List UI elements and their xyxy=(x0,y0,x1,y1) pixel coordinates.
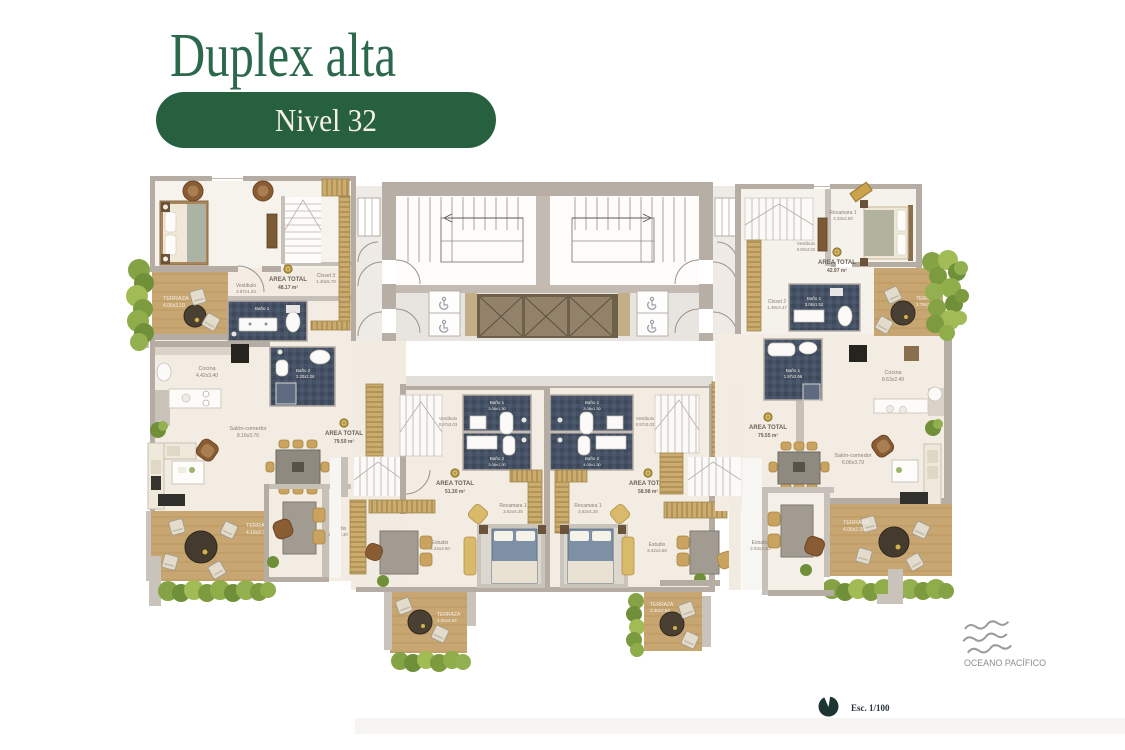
svg-text:3.62x4.25: 3.62x4.25 xyxy=(503,509,523,514)
svg-text:OCEANO PACÍFICO: OCEANO PACÍFICO xyxy=(964,658,1046,669)
svg-text:AREA TOTAL: AREA TOTAL xyxy=(436,481,474,487)
svg-text:8.63x2.40: 8.63x2.40 xyxy=(882,377,904,383)
svg-text:Baño 1: Baño 1 xyxy=(585,400,600,405)
svg-text:1.49x3.47: 1.49x3.47 xyxy=(767,305,787,310)
svg-text:4.06x2.39: 4.06x2.39 xyxy=(843,527,865,533)
svg-text:Baño 2: Baño 2 xyxy=(490,456,505,461)
svg-text:3.03x3.30: 3.03x3.30 xyxy=(750,546,770,551)
svg-text:3.06x1.30: 3.06x1.30 xyxy=(583,406,601,411)
svg-text:Vestibulo: Vestibulo xyxy=(636,416,655,421)
svg-text:Baño 1: Baño 1 xyxy=(807,296,822,301)
svg-text:3.42x3.60: 3.42x3.60 xyxy=(430,546,450,551)
svg-text:51.30 m²: 51.30 m² xyxy=(445,489,465,495)
svg-text:3.42x3.60: 3.42x3.60 xyxy=(647,548,667,553)
svg-text:4.00x1.30: 4.00x1.30 xyxy=(583,462,601,467)
svg-text:4.42x3.40: 4.42x3.40 xyxy=(196,373,218,379)
svg-text:79.59 m²: 79.59 m² xyxy=(334,439,354,445)
svg-text:58.98 m²: 58.98 m² xyxy=(638,489,658,495)
svg-text:Baño 1: Baño 1 xyxy=(255,306,270,311)
svg-text:Baño 1: Baño 1 xyxy=(490,400,505,405)
svg-text:48.17 m²: 48.17 m² xyxy=(278,285,298,291)
svg-text:8.16x3.76: 8.16x3.76 xyxy=(237,433,259,439)
svg-text:3.35x2.64: 3.35x2.64 xyxy=(650,608,670,613)
svg-text:AREA TOTAL: AREA TOTAL xyxy=(269,277,307,283)
svg-text:TERRAZA: TERRAZA xyxy=(843,520,869,526)
svg-text:TERRAZA: TERRAZA xyxy=(163,296,189,302)
svg-text:AREA TOTAL: AREA TOTAL xyxy=(325,431,363,437)
svg-text:0.90x3.00: 0.90x3.00 xyxy=(797,247,816,252)
svg-text:Cocina: Cocina xyxy=(198,366,216,372)
svg-text:Salón-comedor: Salón-comedor xyxy=(834,453,871,459)
svg-text:3.06x1.52: 3.06x1.52 xyxy=(805,302,824,307)
svg-text:0.97x3.03: 0.97x3.03 xyxy=(636,422,655,427)
svg-text:1.97x2.66: 1.97x2.66 xyxy=(784,374,803,379)
svg-text:Duplex alta: Duplex alta xyxy=(170,22,396,90)
svg-text:Vestibulo: Vestibulo xyxy=(439,416,458,421)
svg-text:Nivel 32: Nivel 32 xyxy=(275,102,377,138)
svg-text:3.06x1.30: 3.06x1.30 xyxy=(488,406,506,411)
svg-text:1.40x5.70: 1.40x5.70 xyxy=(316,279,336,284)
svg-text:2.20x2.26: 2.20x2.26 xyxy=(296,374,315,379)
svg-text:Baño 2: Baño 2 xyxy=(296,368,311,373)
svg-text:4.00x3.10: 4.00x3.10 xyxy=(163,303,185,309)
svg-text:Cocina: Cocina xyxy=(884,370,902,376)
svg-text:Salón-comedor: Salón-comedor xyxy=(229,426,266,432)
svg-text:3.06x1.30: 3.06x1.30 xyxy=(488,462,506,467)
svg-text:Esc. 1/100: Esc. 1/100 xyxy=(851,703,890,713)
svg-text:79.55 m²: 79.55 m² xyxy=(758,433,778,439)
svg-text:Vestibulo: Vestibulo xyxy=(797,241,816,246)
svg-text:6.06x3.79: 6.06x3.79 xyxy=(842,460,864,466)
svg-text:2.87x1.24: 2.87x1.24 xyxy=(236,289,256,294)
svg-text:0.97x3.03: 0.97x3.03 xyxy=(439,422,458,427)
svg-text:2.55x2.64: 2.55x2.64 xyxy=(437,618,457,623)
svg-text:3.62x4.25: 3.62x4.25 xyxy=(578,509,598,514)
svg-text:Baño 1: Baño 1 xyxy=(786,368,801,373)
svg-text:Baño 2: Baño 2 xyxy=(585,456,600,461)
svg-text:3.33x3.60: 3.33x3.60 xyxy=(833,216,853,221)
svg-text:42.97 m²: 42.97 m² xyxy=(827,268,847,274)
svg-text:AREA TOTAL: AREA TOTAL xyxy=(749,425,787,431)
svg-text:AREA TOTAL: AREA TOTAL xyxy=(818,260,856,266)
